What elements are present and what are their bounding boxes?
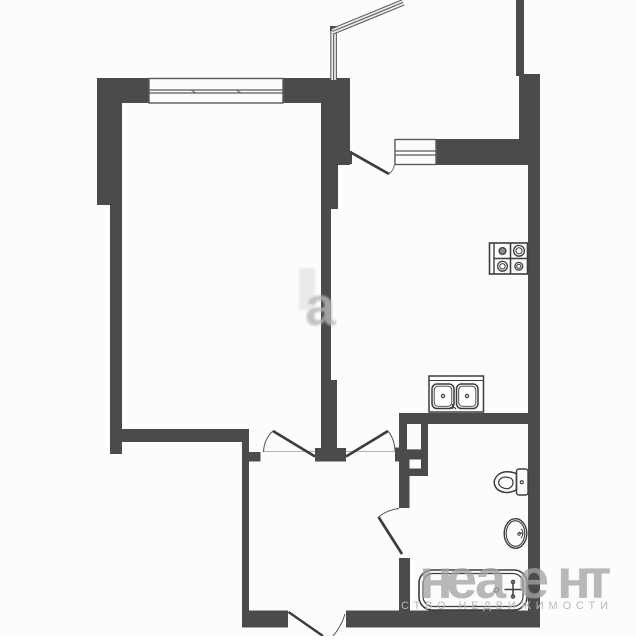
svg-text:а: а [305, 275, 336, 337]
